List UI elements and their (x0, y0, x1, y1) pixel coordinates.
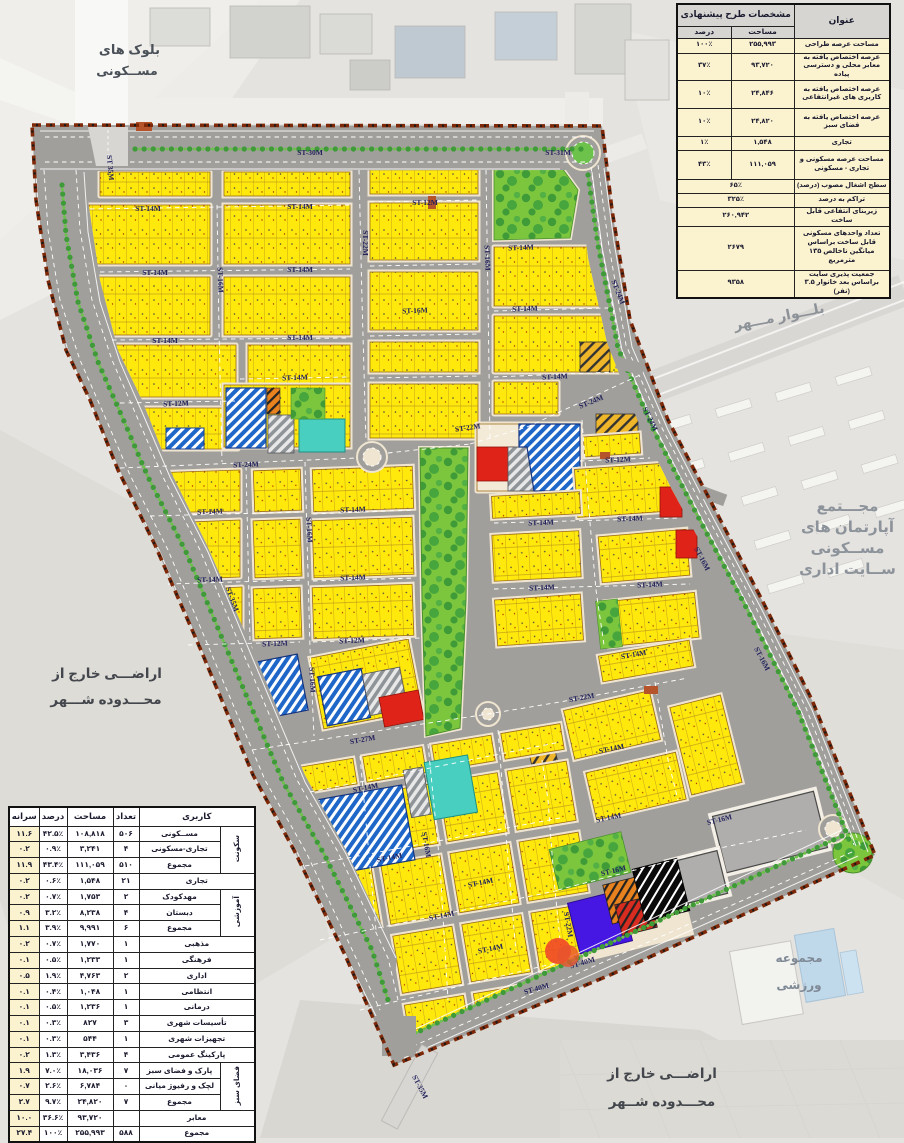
svg-text:ST-14M: ST-14M (135, 204, 161, 213)
svg-text:ST-24M: ST-24M (233, 460, 259, 470)
svg-text:ST-12M: ST-12M (605, 454, 631, 464)
svg-text:ST-16M: ST-16M (483, 245, 493, 271)
svg-text:ST-14M: ST-14M (617, 514, 643, 524)
svg-text:ST-14M: ST-14M (340, 505, 366, 515)
svg-text:ST-14M: ST-14M (287, 265, 313, 274)
svg-text:ST-14M: ST-14M (287, 333, 313, 342)
svg-text:ST-12M: ST-12M (163, 399, 189, 409)
svg-text:ST-12M: ST-12M (412, 198, 438, 207)
svg-text:ST-12M: ST-12M (262, 639, 288, 649)
svg-text:ST-14M: ST-14M (287, 202, 313, 211)
svg-text:ST-16M: ST-16M (307, 667, 317, 693)
svg-text:ST-14M: ST-14M (512, 304, 538, 314)
svg-text:ST-14M: ST-14M (637, 579, 663, 589)
svg-text:ST-31M: ST-31M (545, 148, 571, 157)
svg-text:ST-14M: ST-14M (340, 573, 366, 583)
svg-text:ST-14M: ST-14M (529, 582, 555, 592)
svg-text:ST-14M: ST-14M (528, 518, 554, 528)
svg-text:ST-16M: ST-16M (304, 517, 314, 543)
svg-text:ST-14M: ST-14M (152, 336, 178, 345)
svg-text:ST-14M: ST-14M (142, 268, 168, 277)
svg-text:ST-12M: ST-12M (339, 636, 365, 646)
svg-text:ST-14M: ST-14M (508, 243, 534, 253)
svg-text:ST-14M: ST-14M (282, 373, 308, 383)
svg-text:ST-14M: ST-14M (197, 507, 223, 517)
svg-text:ST-22M: ST-22M (361, 230, 370, 256)
svg-text:ST-14M: ST-14M (542, 371, 568, 381)
svg-text:ST-14M: ST-14M (197, 575, 223, 585)
svg-text:ST-30M: ST-30M (297, 148, 323, 157)
svg-text:ST-16M: ST-16M (216, 267, 226, 293)
svg-text:ST-16M: ST-16M (402, 306, 428, 316)
